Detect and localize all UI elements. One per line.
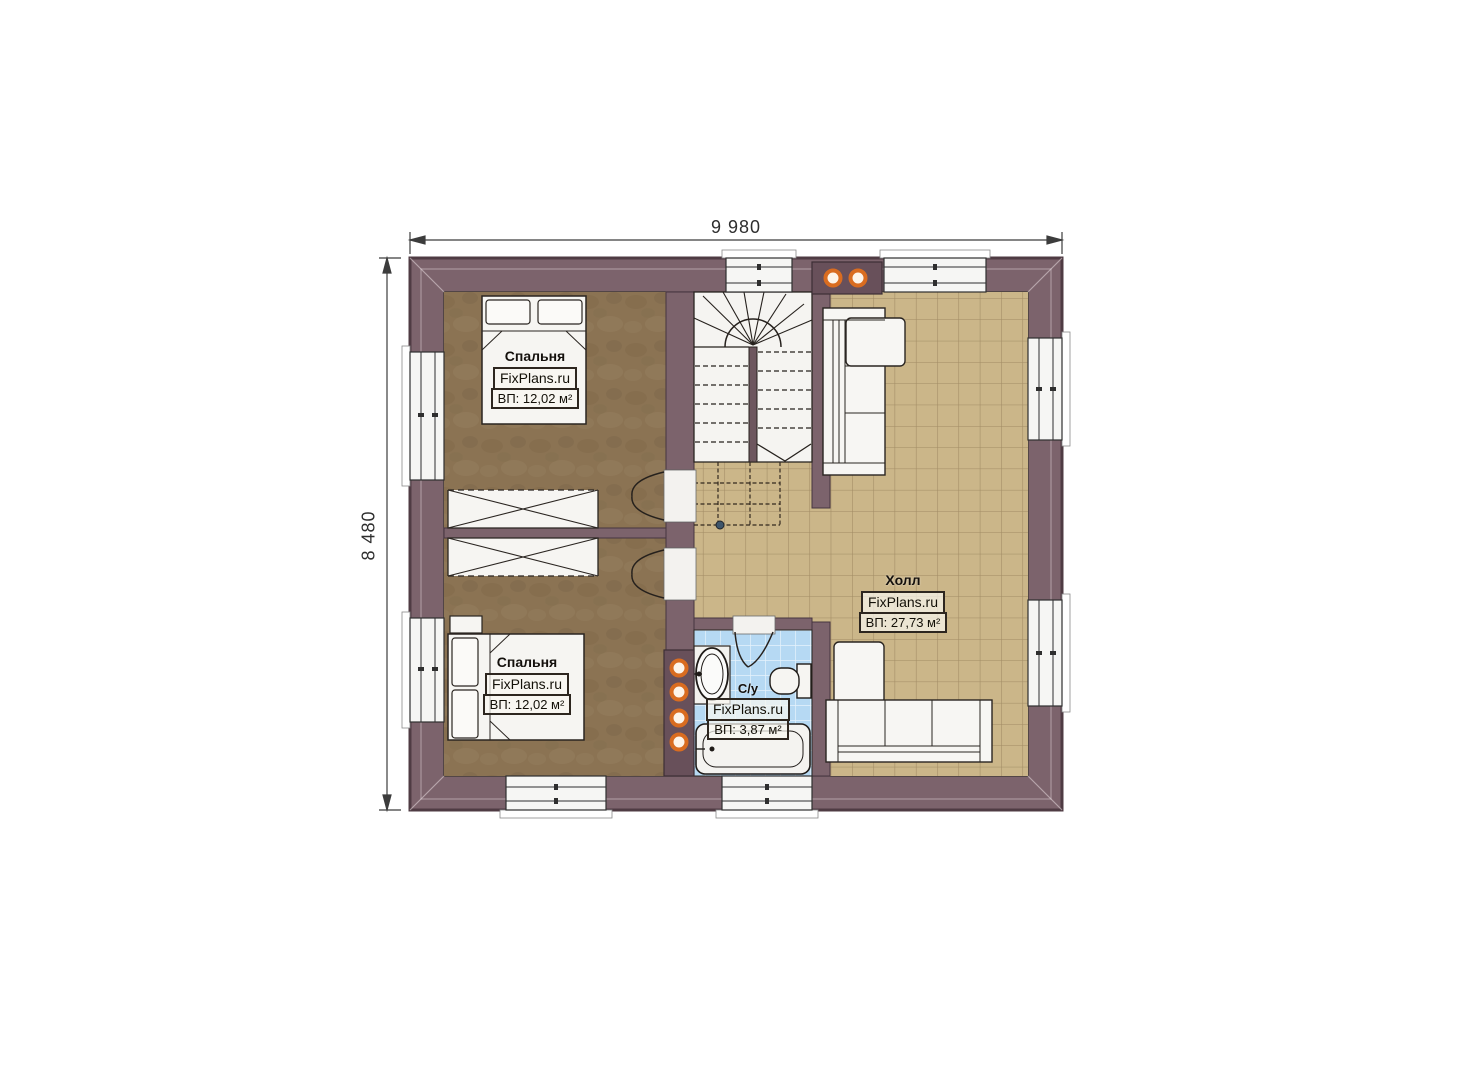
room-name: С/у	[738, 681, 758, 697]
room-area: ВП: 27,73 м²	[859, 612, 948, 633]
bedroom1-door-opening	[664, 470, 696, 522]
watermark-badge: FixPlans.ru	[493, 367, 577, 390]
room-area: ВП: 3,87 м²	[707, 719, 788, 740]
vent-duct-icon	[826, 271, 841, 286]
watermark-badge: FixPlans.ru	[706, 698, 790, 721]
window-top-1	[722, 250, 796, 292]
dimension-height-label: 8 480	[359, 496, 380, 576]
floor-plan-canvas: 9 980 8 480 Спальня FixPlans.ru ВП: 12,0…	[0, 0, 1473, 1080]
floor-plan-drawing	[0, 0, 1473, 1080]
bedroom1-label: Спальня FixPlans.ru ВП: 12,02 м²	[460, 348, 610, 409]
vent-duct-icon	[672, 661, 687, 676]
bathroom-label: С/у FixPlans.ru ВП: 3,87 м²	[673, 681, 823, 740]
vent-block-top	[812, 262, 882, 294]
window-right-2	[1028, 594, 1070, 712]
watermark-badge: FixPlans.ru	[861, 591, 945, 614]
window-left-2	[402, 612, 444, 728]
stair-newel-post	[716, 521, 724, 529]
watermark-badge: FixPlans.ru	[485, 673, 569, 696]
window-bottom-1	[500, 776, 612, 818]
bedroom2-door-opening	[664, 548, 696, 600]
window-top-2	[880, 250, 990, 292]
vent-duct-icon	[851, 271, 866, 286]
room-name: Холл	[885, 572, 920, 588]
bedroom2-label: Спальня FixPlans.ru ВП: 12,02 м²	[452, 654, 602, 715]
room-name: Спальня	[497, 654, 557, 670]
room-name: Спальня	[505, 348, 565, 364]
window-left-1	[402, 346, 444, 486]
room-area: ВП: 12,02 м²	[491, 388, 580, 409]
room-area: ВП: 12,02 м²	[483, 694, 572, 715]
bathroom-door-opening	[733, 616, 775, 634]
nightstand	[450, 616, 482, 633]
window-right-1	[1028, 332, 1070, 446]
stair-stringer	[749, 347, 757, 462]
dimension-width-label: 9 980	[696, 217, 776, 238]
window-bottom-2	[716, 776, 818, 818]
hall-label: Холл FixPlans.ru ВП: 27,73 м²	[828, 572, 978, 633]
